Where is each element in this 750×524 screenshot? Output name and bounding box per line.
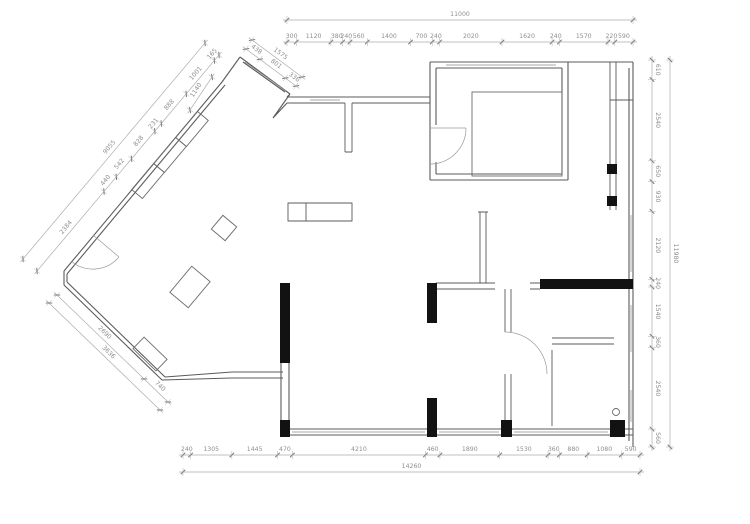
dim-label: 2020 — [463, 33, 479, 40]
dim-label: 240 — [654, 277, 661, 289]
dim-chain-line — [20, 40, 207, 262]
dim-label: 231 — [147, 117, 160, 131]
dim-label: 240 — [181, 446, 193, 453]
lower-wing-cabinet — [133, 337, 167, 371]
dim-chain-line — [34, 52, 221, 274]
interior-wall-lines — [288, 62, 633, 426]
dim-label: 11000 — [450, 11, 470, 18]
dim-label: 3636 — [100, 344, 116, 360]
dim-label: 828 — [132, 134, 145, 148]
dim-label: 930 — [654, 191, 661, 203]
dim-label: 240 — [340, 33, 352, 40]
dim-label: 888 — [163, 98, 176, 112]
dim-label: 1570 — [576, 33, 592, 40]
dim-label: 560 — [654, 432, 661, 444]
dim-label: 700 — [415, 33, 427, 40]
dim-label: 438 — [250, 43, 264, 56]
dim-chain-line — [249, 38, 305, 80]
dim-label: 2540 — [654, 112, 661, 128]
dim-label: 165 — [206, 47, 219, 61]
dim-label: 9055 — [102, 139, 118, 156]
dim-label: 2120 — [654, 237, 661, 253]
dim-label: 440 — [99, 174, 112, 188]
dim-label: 740 — [153, 380, 166, 393]
dim-chain-line — [46, 300, 163, 413]
dim-label: 650 — [654, 165, 661, 177]
dim-label: 460 — [427, 446, 439, 453]
dim-label: 2540 — [654, 381, 661, 397]
dim-label: 300 — [286, 33, 298, 40]
dim-label: 801 — [269, 58, 283, 71]
dim-label: 240 — [550, 33, 562, 40]
dim-label: 1620 — [519, 33, 535, 40]
door-arcs — [71, 128, 547, 374]
dim-label: 590 — [625, 446, 637, 453]
entry-cabinet — [170, 266, 210, 307]
dim-label: 1540 — [654, 304, 661, 320]
walls-group — [64, 57, 633, 447]
fixture-circle — [613, 409, 620, 416]
dim-label: 610 — [654, 64, 661, 76]
dim-label: 1445 — [247, 446, 263, 453]
dim-label: 542 — [113, 157, 126, 171]
dim-label: 880 — [567, 446, 579, 453]
dim-label: 4210 — [351, 446, 367, 453]
wardrobe-rect — [472, 92, 562, 176]
dim-label: 360 — [654, 336, 661, 348]
dim-label: 590 — [618, 33, 630, 40]
dimension-annotations: 3001120380240560140070024020201620240157… — [20, 11, 679, 476]
dim-label: 1400 — [381, 33, 397, 40]
dim-label: 2384 — [58, 219, 74, 236]
furniture-square — [211, 215, 236, 240]
floor-plan-canvas: 3001120380240560140070024020201620240157… — [0, 0, 750, 524]
dim-label: 2690 — [96, 325, 112, 341]
poche-filled-walls — [280, 164, 633, 437]
dim-chain-line — [54, 292, 171, 405]
dim-label: 220 — [605, 33, 617, 40]
dim-label: 1080 — [596, 446, 612, 453]
dim-label: 14260 — [402, 463, 422, 470]
dim-label: 11980 — [672, 244, 679, 264]
dim-label: 1001 — [188, 65, 204, 82]
wing-wall-lines — [64, 57, 290, 380]
dim-label: 1305 — [203, 446, 219, 453]
window-lines — [245, 62, 631, 432]
dim-label: 1890 — [462, 446, 478, 453]
dim-label: 560 — [353, 33, 365, 40]
dim-label: 360 — [548, 446, 560, 453]
floor-plan-drawing: 3001120380240560140070024020201620240157… — [0, 0, 750, 524]
dim-label: 1140 — [189, 82, 204, 99]
wing-cabinet-3 — [132, 163, 165, 198]
dim-label: 470 — [279, 446, 291, 453]
dim-label: 1120 — [306, 33, 322, 40]
dim-label: 240 — [430, 33, 442, 40]
exterior-wall-lines — [232, 62, 633, 447]
dim-label: 1530 — [516, 446, 532, 453]
